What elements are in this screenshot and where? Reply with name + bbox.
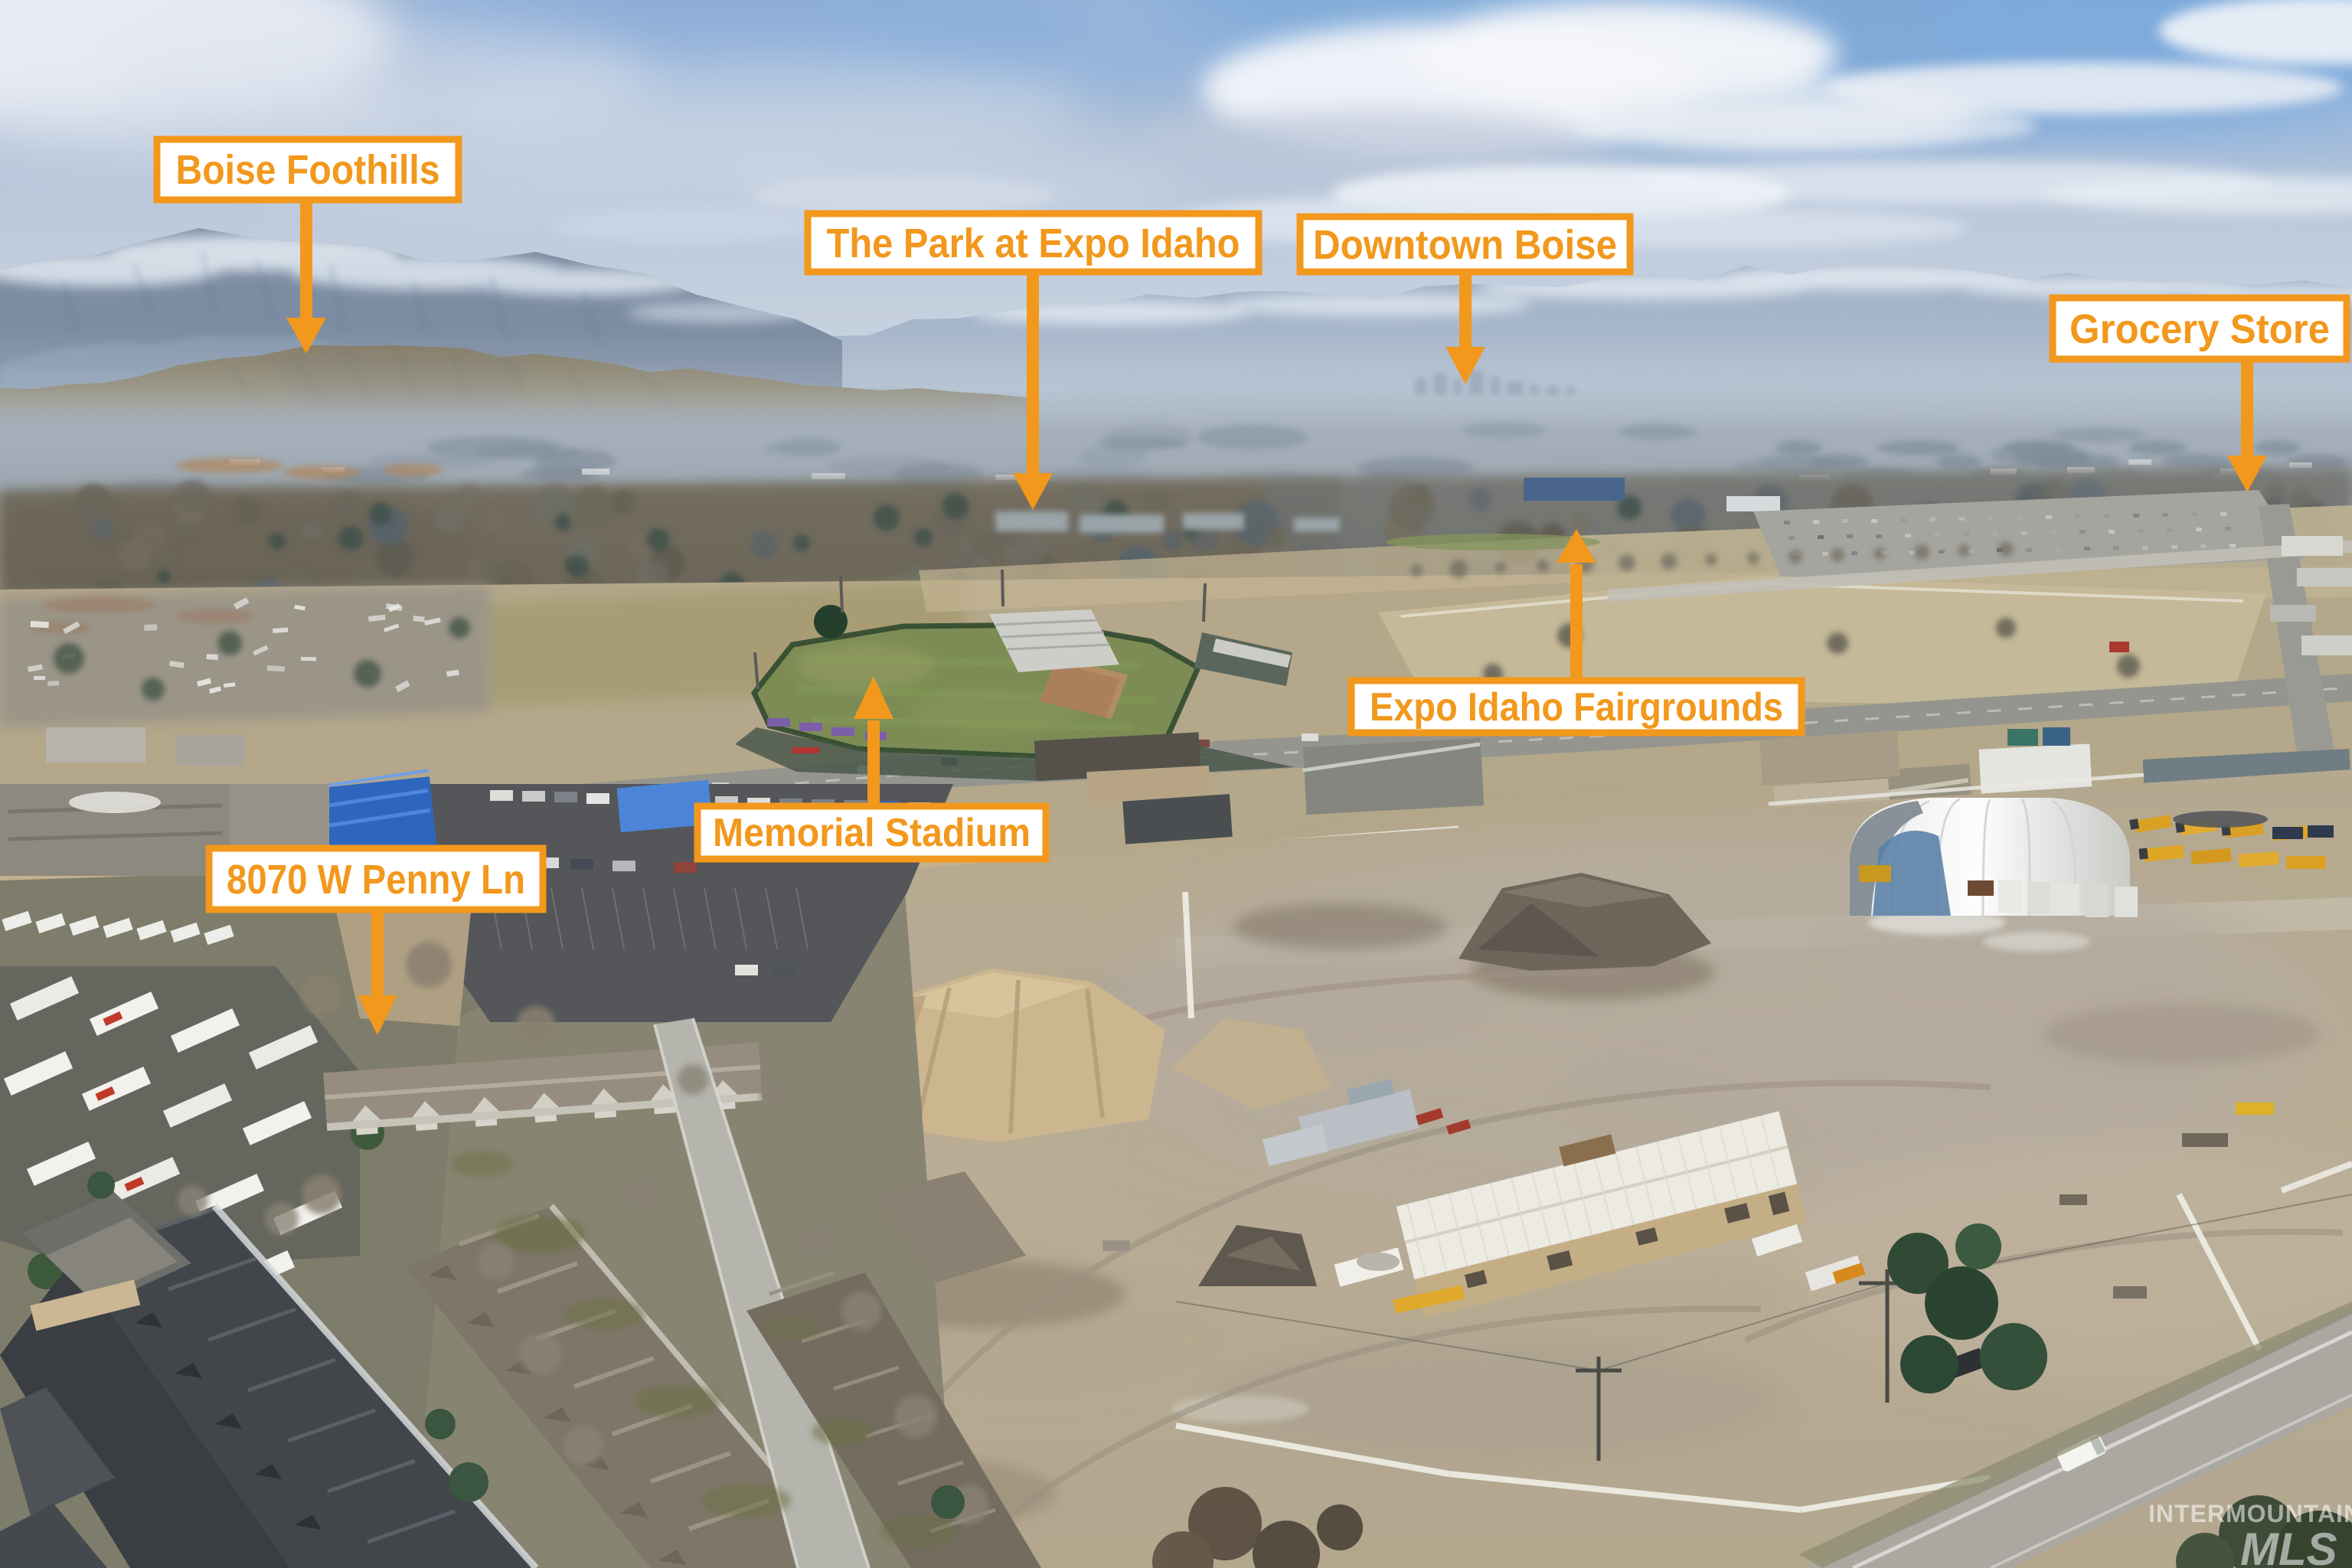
svg-text:Grocery Store: Grocery Store [2069,306,2330,352]
svg-text:Boise Foothills: Boise Foothills [176,147,440,193]
svg-text:8070 W Penny Ln: 8070 W Penny Ln [227,857,525,903]
svg-text:Downtown Boise: Downtown Boise [1313,222,1617,268]
svg-text:MLS: MLS [2240,1524,2337,1568]
svg-text:Memorial Stadium: Memorial Stadium [713,811,1031,855]
svg-text:Expo Idaho Fairgrounds: Expo Idaho Fairgrounds [1370,685,1783,730]
svg-text:The Park at Expo Idaho: The Park at Expo Idaho [827,220,1240,266]
